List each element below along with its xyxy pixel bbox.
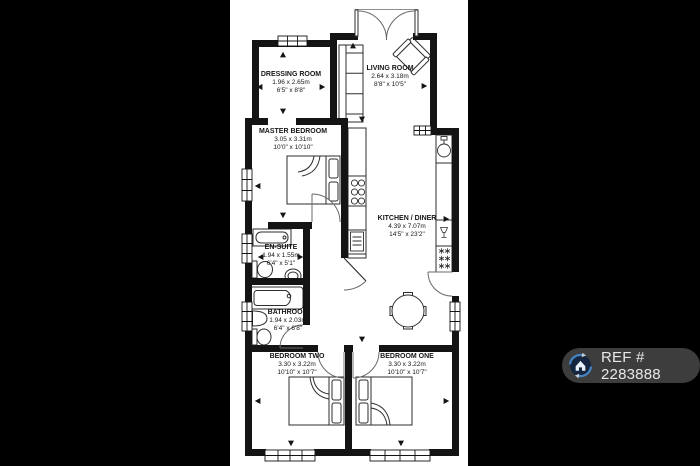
window-kitchen-passage (414, 126, 431, 135)
window-bathroom-left (242, 302, 252, 331)
bathroom-basin (253, 311, 268, 326)
window-master-left (242, 169, 252, 201)
shower (253, 229, 291, 246)
window-dressing-top (278, 36, 307, 46)
watermark-badge: REF # 2283888 (562, 348, 700, 383)
ensuite-toilet (252, 261, 273, 278)
window-bedroom-two-bottom (265, 450, 315, 461)
master-bed (287, 156, 340, 204)
sofa (339, 45, 363, 122)
window-diner-right (450, 302, 460, 331)
bathtub (250, 287, 303, 309)
watermark-ref: REF # 2283888 (601, 349, 700, 383)
window-ensuite-left (242, 234, 252, 263)
bathroom-toilet (252, 329, 271, 345)
floorplan-drawing (0, 0, 700, 466)
house-sync-icon (567, 352, 594, 379)
window-bedroom-one-bottom (370, 450, 430, 461)
bedroom-one-bed (356, 377, 412, 425)
bedroom-two-bed (289, 377, 344, 425)
floorplan-image: DRESSING ROOM 1.96 x 2.65m 6'5" x 8'8" L… (0, 0, 700, 466)
